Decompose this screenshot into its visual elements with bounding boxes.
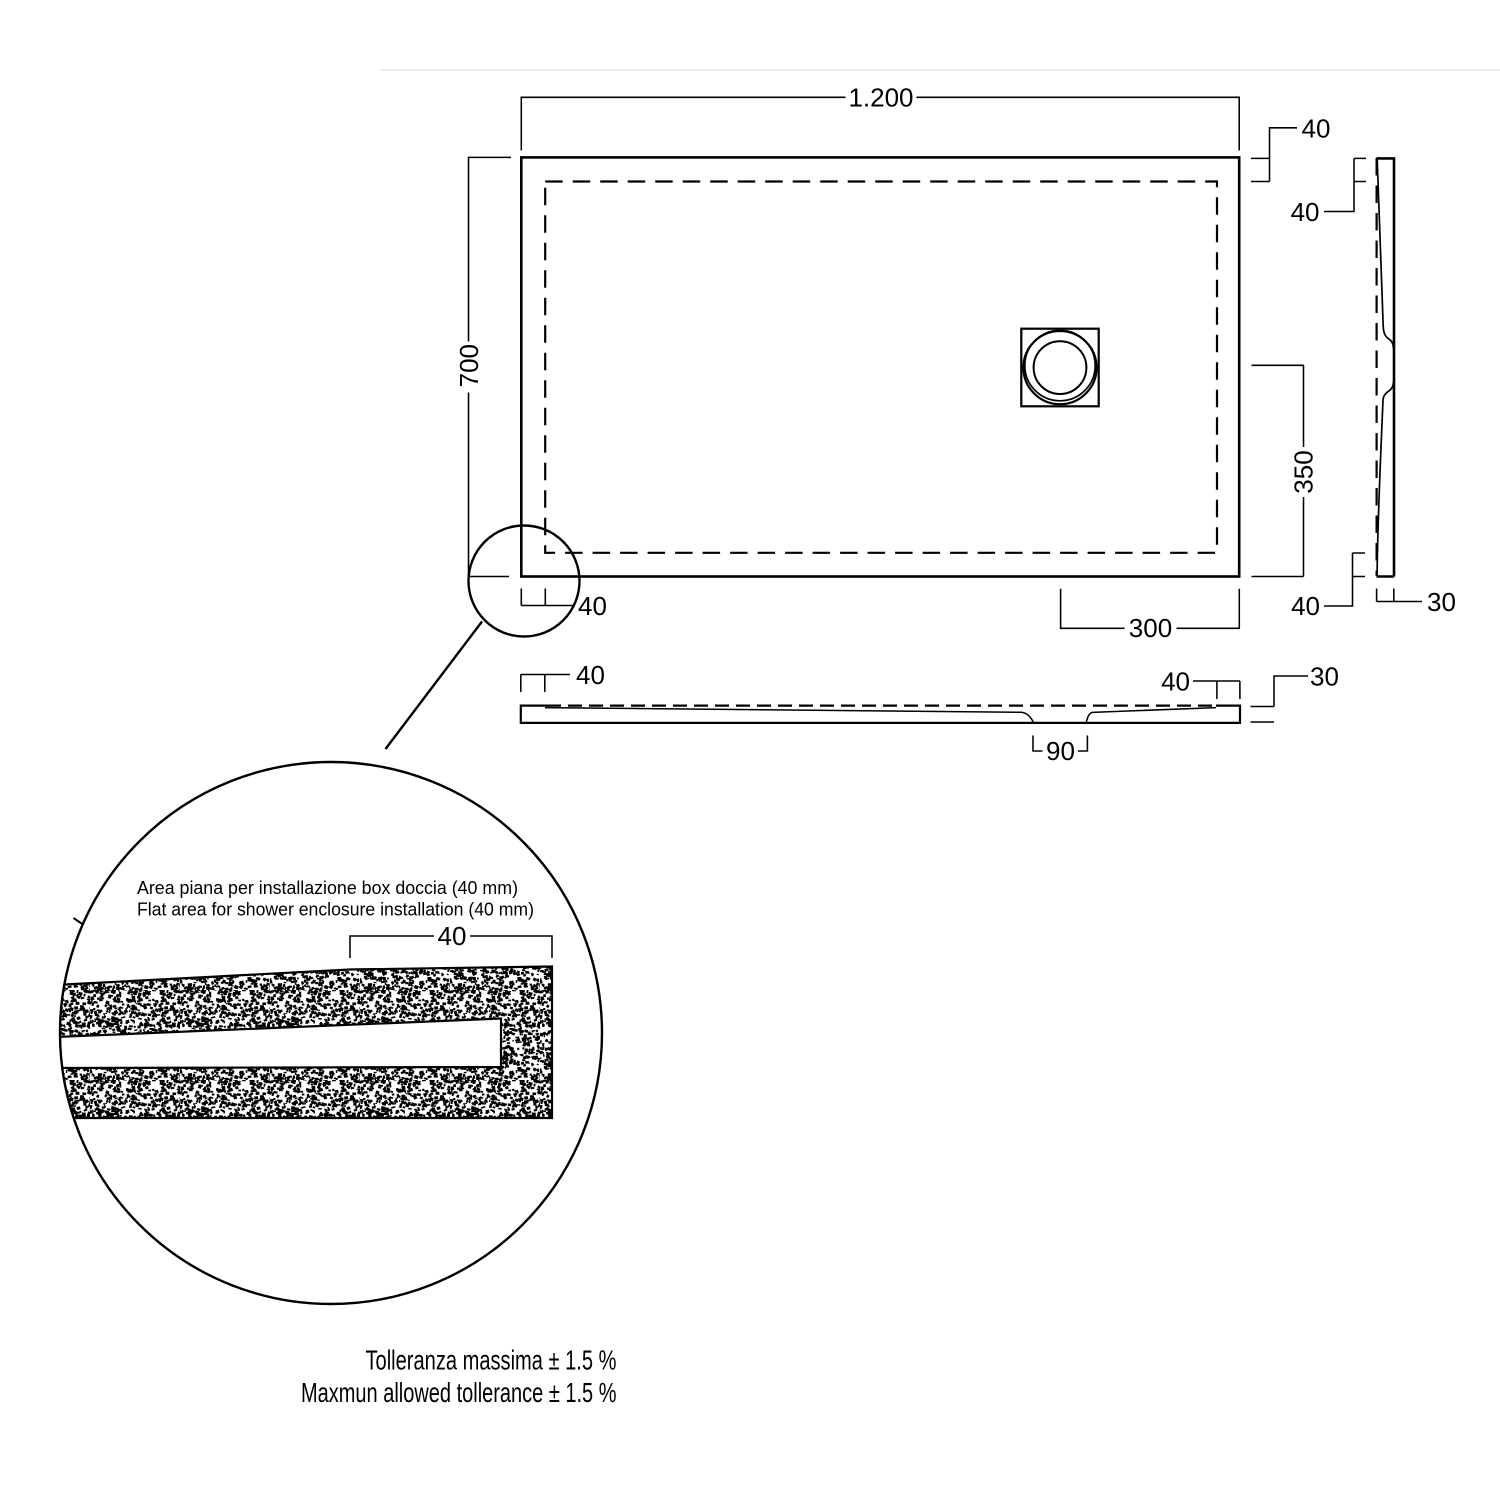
svg-text:Tolleranza massima ± 1.5 %: Tolleranza massima ± 1.5 % xyxy=(366,1345,617,1376)
svg-text:40: 40 xyxy=(1302,114,1331,144)
svg-text:300: 300 xyxy=(1129,613,1172,643)
svg-text:90: 90 xyxy=(1046,736,1075,766)
svg-text:40: 40 xyxy=(576,660,605,690)
svg-text:30: 30 xyxy=(1427,587,1456,617)
svg-text:350: 350 xyxy=(1289,450,1319,493)
svg-text:700: 700 xyxy=(454,344,484,387)
svg-text:1.200: 1.200 xyxy=(848,83,913,113)
svg-text:Flat area for shower enclosure: Flat area for shower enclosure installat… xyxy=(137,899,534,920)
svg-text:Area piana per installazione b: Area piana per installazione box doccia … xyxy=(137,877,518,898)
svg-text:30: 30 xyxy=(1310,661,1339,691)
svg-text:40: 40 xyxy=(1291,591,1320,621)
svg-text:40: 40 xyxy=(438,921,467,951)
svg-text:40: 40 xyxy=(1291,197,1320,227)
svg-text:40: 40 xyxy=(1161,666,1190,696)
svg-text:Maxmun allowed tollerance ± 1.: Maxmun allowed tollerance ± 1.5 % xyxy=(301,1377,617,1408)
svg-text:40: 40 xyxy=(578,591,607,621)
